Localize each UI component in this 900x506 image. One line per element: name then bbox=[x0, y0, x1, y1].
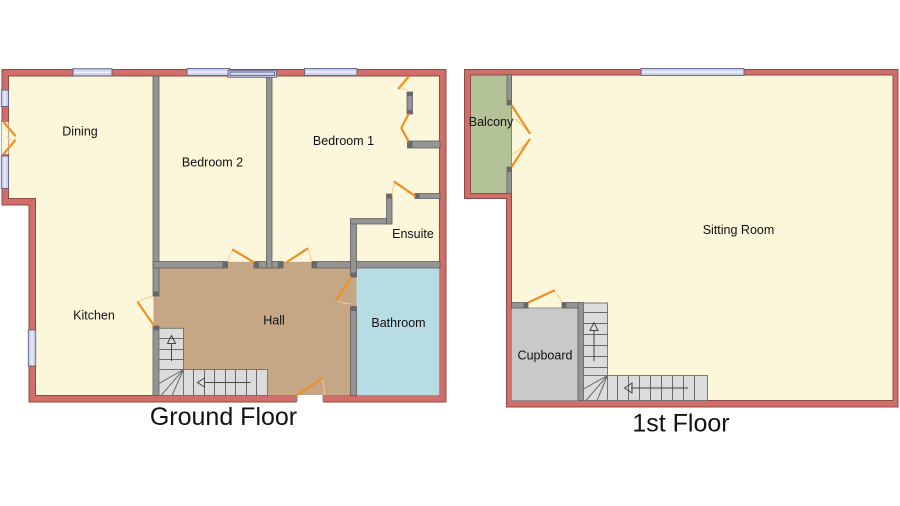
svg-text:Bedroom 2: Bedroom 2 bbox=[182, 156, 243, 170]
svg-text:Balcony: Balcony bbox=[469, 115, 514, 129]
svg-text:1st Floor: 1st Floor bbox=[632, 410, 729, 438]
svg-text:Bedroom 1: Bedroom 1 bbox=[313, 134, 374, 148]
svg-text:Sitting Room: Sitting Room bbox=[703, 223, 775, 237]
svg-text:Ensuite: Ensuite bbox=[392, 227, 434, 241]
svg-text:Cupboard: Cupboard bbox=[518, 349, 573, 363]
svg-text:Hall: Hall bbox=[263, 314, 285, 328]
svg-text:Dining: Dining bbox=[62, 125, 97, 139]
svg-text:Bathroom: Bathroom bbox=[371, 316, 425, 330]
svg-text:Kitchen: Kitchen bbox=[73, 309, 115, 323]
svg-text:Ground Floor: Ground Floor bbox=[150, 403, 297, 431]
